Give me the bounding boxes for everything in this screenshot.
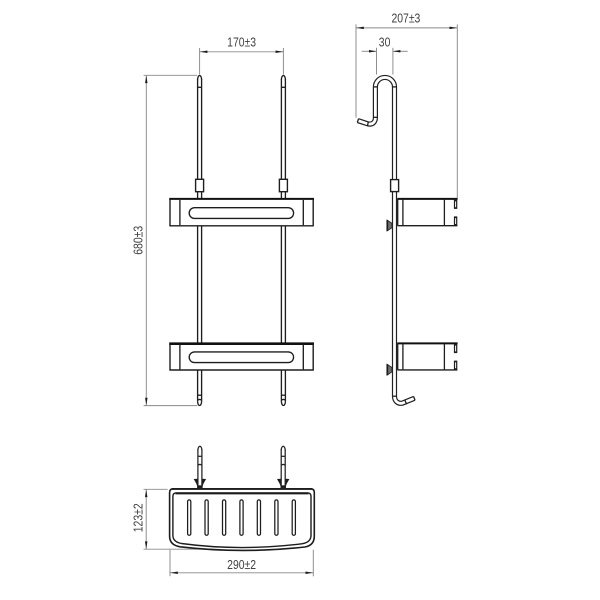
- svg-text:170±3: 170±3: [227, 36, 256, 50]
- svg-text:123±2: 123±2: [131, 503, 145, 532]
- svg-text:290±2: 290±2: [227, 558, 256, 572]
- svg-text:30: 30: [379, 35, 391, 49]
- svg-text:207±3: 207±3: [391, 12, 420, 26]
- svg-text:680±3: 680±3: [131, 226, 145, 255]
